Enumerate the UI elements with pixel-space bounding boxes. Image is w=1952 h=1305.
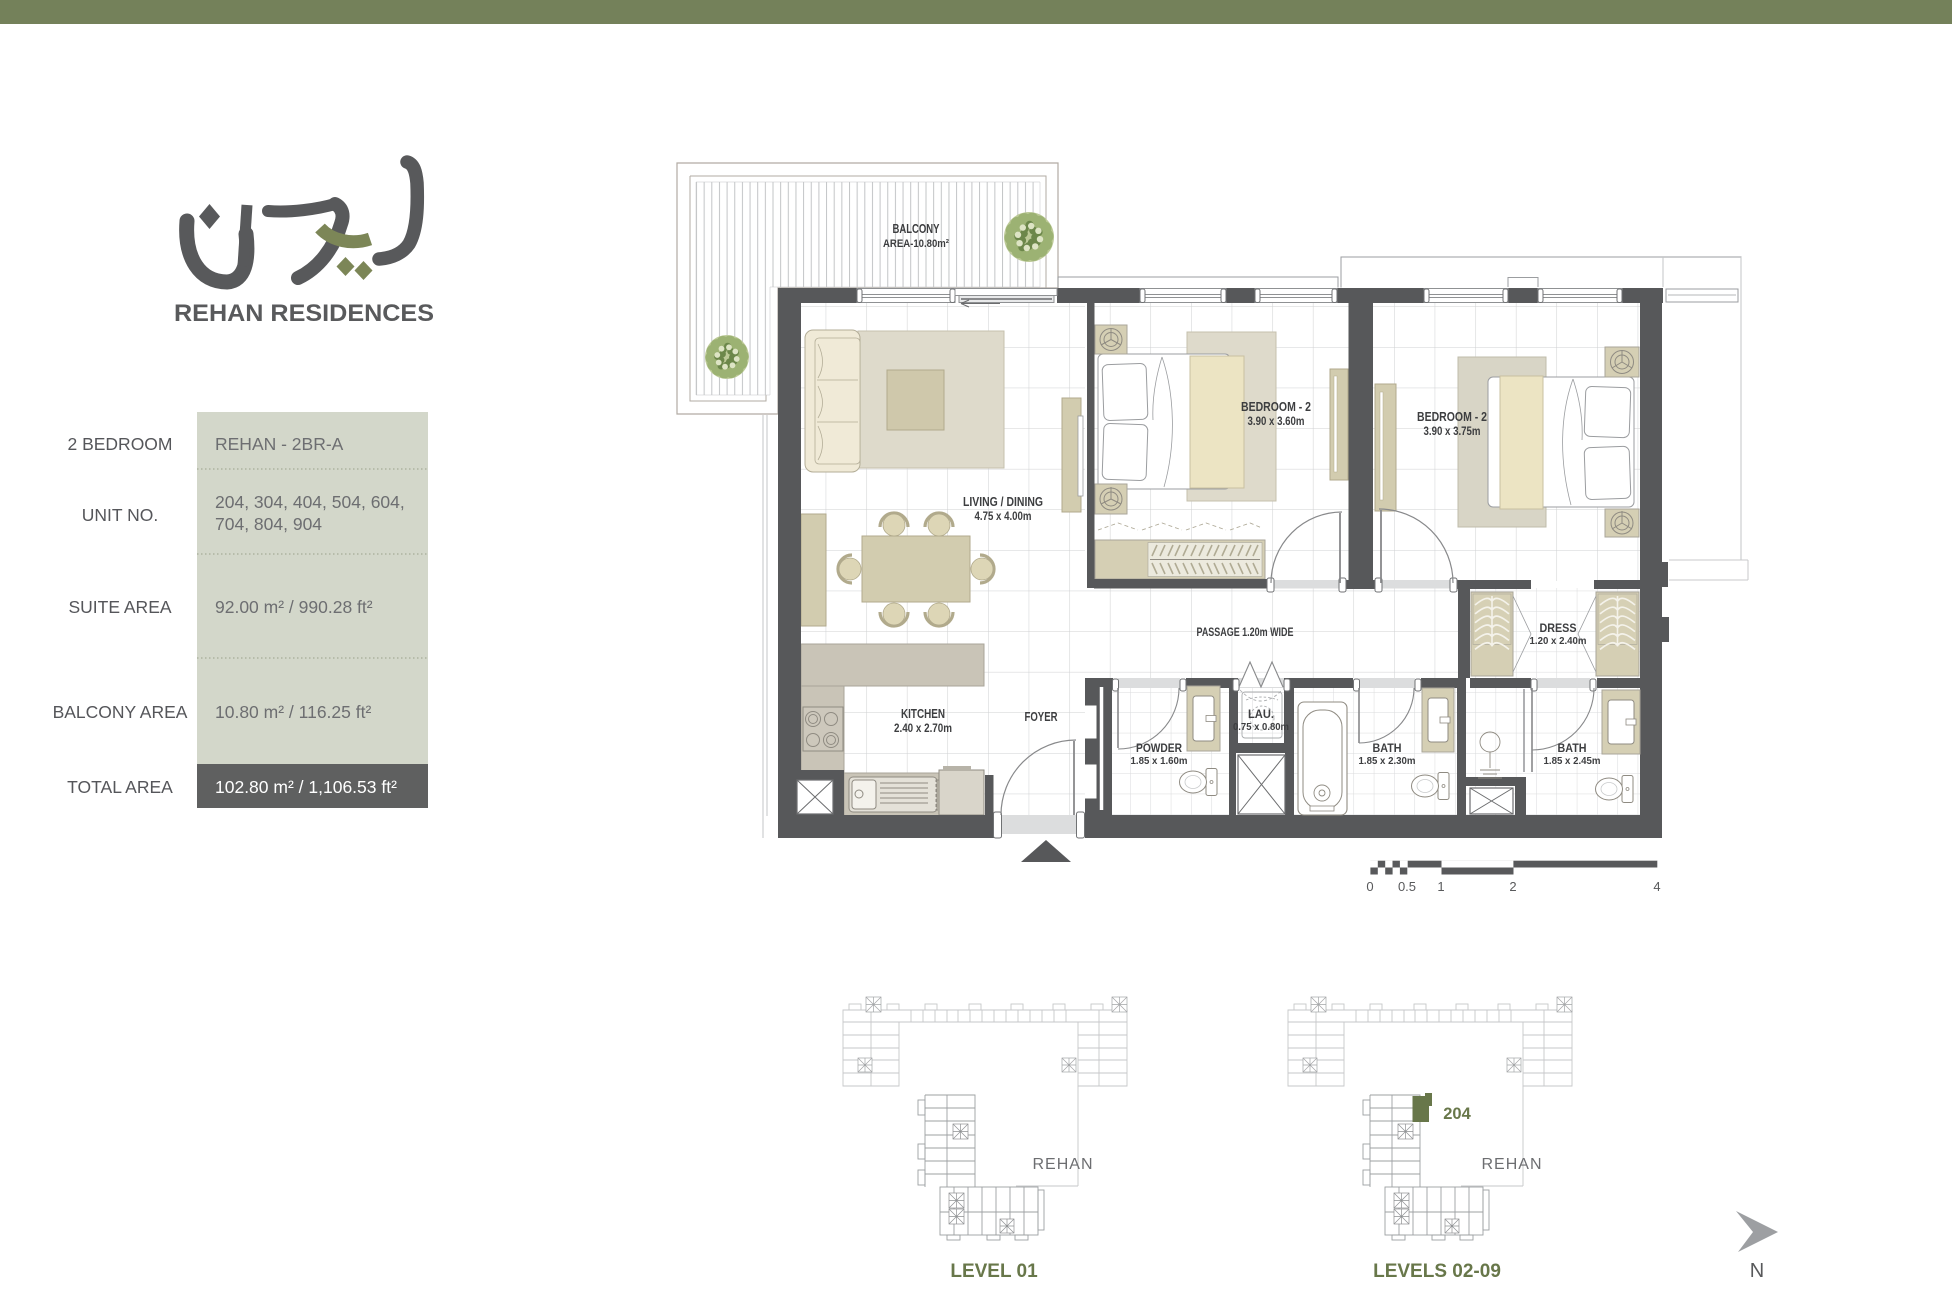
svg-text:TOTAL AREA: TOTAL AREA xyxy=(67,777,173,797)
svg-text:AREA-10.80m²: AREA-10.80m² xyxy=(883,238,949,250)
svg-text:1.85 x 2.30m: 1.85 x 2.30m xyxy=(1359,755,1416,767)
svg-text:BEDROOM - 2: BEDROOM - 2 xyxy=(1417,409,1487,424)
svg-text:204: 204 xyxy=(1443,1105,1471,1123)
svg-text:2.40 x 2.70m: 2.40 x 2.70m xyxy=(894,723,952,735)
svg-text:4: 4 xyxy=(1653,879,1660,894)
svg-text:10.80 m² / 116.25 ft²: 10.80 m² / 116.25 ft² xyxy=(215,702,371,722)
svg-text:REHAN RESIDENCES: REHAN RESIDENCES xyxy=(174,300,434,327)
svg-text:BATH: BATH xyxy=(1373,743,1402,755)
svg-text:BALCONY AREA: BALCONY AREA xyxy=(53,702,188,722)
svg-text:1: 1 xyxy=(1437,879,1444,894)
svg-text:LEVELS 02-09: LEVELS 02-09 xyxy=(1373,1261,1501,1282)
svg-text:3.90 x 3.75m: 3.90 x 3.75m xyxy=(1424,424,1481,438)
svg-text:92.00 m² / 990.28 ft²: 92.00 m² / 990.28 ft² xyxy=(215,597,373,617)
svg-text:PASSAGE 1.20m WIDE: PASSAGE 1.20m WIDE xyxy=(1197,625,1294,639)
svg-text:2 BEDROOM: 2 BEDROOM xyxy=(67,434,172,454)
svg-text:POWDER: POWDER xyxy=(1136,743,1183,755)
svg-text:FOYER: FOYER xyxy=(1025,710,1058,724)
svg-text:DRESS: DRESS xyxy=(1540,623,1577,635)
svg-text:0.5: 0.5 xyxy=(1398,879,1416,894)
svg-text:4.75 x 4.00m: 4.75 x 4.00m xyxy=(975,509,1032,523)
svg-text:BEDROOM - 2: BEDROOM - 2 xyxy=(1241,399,1311,414)
svg-text:REHAN: REHAN xyxy=(1032,1156,1093,1173)
svg-text:BALCONY: BALCONY xyxy=(893,222,940,236)
svg-text:REHAN - 2BR-A: REHAN - 2BR-A xyxy=(215,434,344,454)
svg-text:704, 804, 904: 704, 804, 904 xyxy=(215,514,322,534)
svg-text:0.75 x 0.80m: 0.75 x 0.80m xyxy=(1233,721,1289,733)
svg-text:204, 304, 404, 504, 604,: 204, 304, 404, 504, 604, xyxy=(215,492,405,512)
svg-text:KITCHEN: KITCHEN xyxy=(901,707,945,721)
svg-text:1.85 x 2.45m: 1.85 x 2.45m xyxy=(1544,755,1601,767)
svg-text:UNIT NO.: UNIT NO. xyxy=(82,505,159,525)
svg-text:102.80 m² / 1,106.53 ft²: 102.80 m² / 1,106.53 ft² xyxy=(215,777,397,797)
svg-text:BATH: BATH xyxy=(1558,743,1587,755)
svg-text:SUITE AREA: SUITE AREA xyxy=(68,597,171,617)
svg-text:1.20 x 2.40m: 1.20 x 2.40m xyxy=(1530,635,1587,647)
svg-text:0: 0 xyxy=(1366,879,1373,894)
svg-text:LIVING / DINING: LIVING / DINING xyxy=(963,494,1043,509)
svg-text:1.85 x 1.60m: 1.85 x 1.60m xyxy=(1131,755,1188,767)
svg-text:3.90 x 3.60m: 3.90 x 3.60m xyxy=(1248,414,1305,428)
svg-text:REHAN: REHAN xyxy=(1481,1156,1542,1173)
svg-text:LEVEL 01: LEVEL 01 xyxy=(950,1261,1038,1282)
svg-text:LAU.: LAU. xyxy=(1248,709,1274,721)
svg-text:2: 2 xyxy=(1509,879,1516,894)
svg-text:N: N xyxy=(1750,1260,1764,1282)
